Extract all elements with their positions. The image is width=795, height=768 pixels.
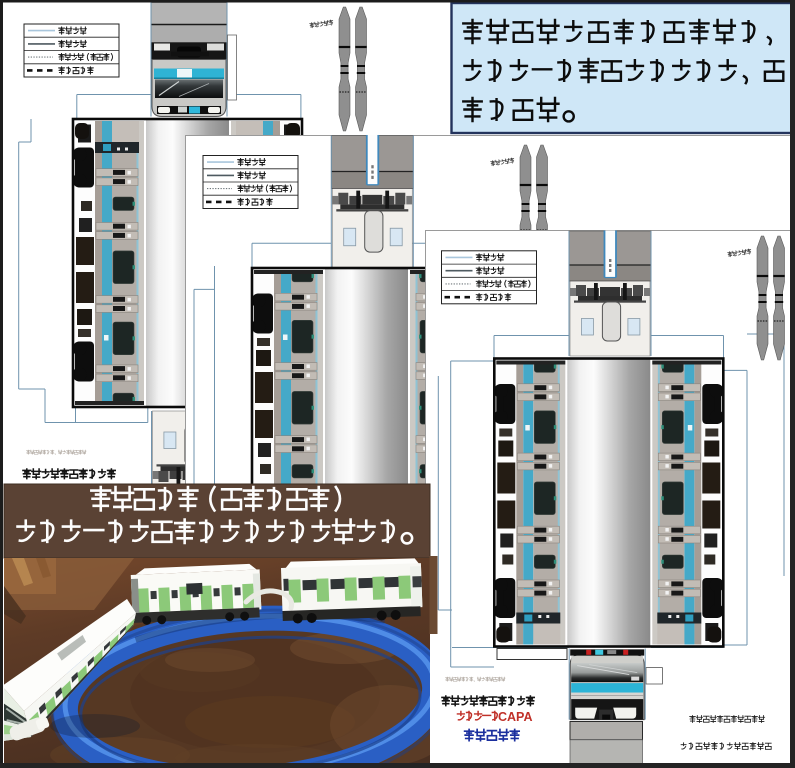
- svg-text:CAPA: CAPA: [498, 710, 533, 724]
